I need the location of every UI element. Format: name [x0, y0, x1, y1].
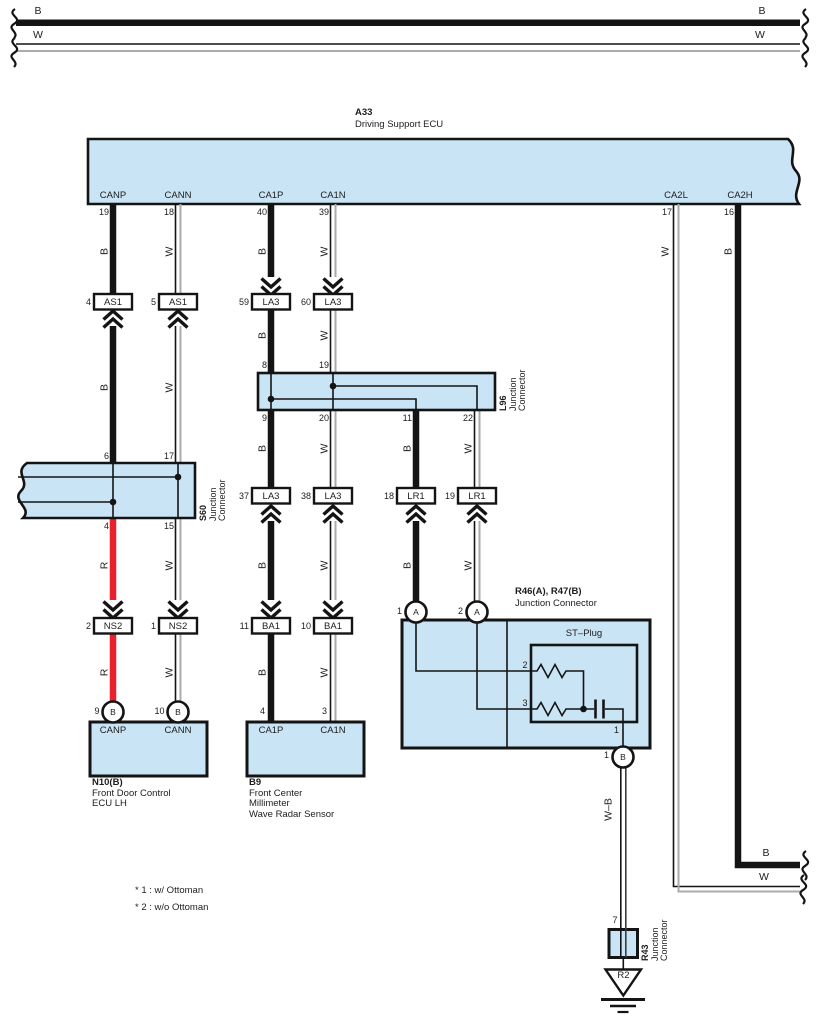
- wire-break-icon: [802, 38, 808, 67]
- r46-in-pin-num: 2: [439, 606, 463, 616]
- top-bus-wires: [11, 9, 808, 67]
- l96-junction-connector-box: [258, 373, 495, 410]
- a33-pin-num: 18: [150, 207, 174, 217]
- st-plug-pin-num: 1: [595, 725, 619, 735]
- connector-code: LA3: [314, 491, 352, 502]
- b9-desc: Millimeter: [249, 799, 290, 810]
- wire-color-label: B: [257, 657, 268, 687]
- a33-desc: Driving Support ECU: [355, 120, 443, 131]
- n10-desc: ECU LH: [92, 799, 127, 810]
- l96-pin-num: 22: [449, 413, 473, 423]
- r46-in-pin-num: 1: [378, 606, 402, 616]
- connector-pin-num: 18: [370, 491, 394, 501]
- a33-pin-num: 17: [648, 207, 672, 217]
- r46-pin-circle-letter: B: [613, 752, 634, 762]
- a33-pin-label: CA1N: [311, 191, 355, 201]
- wire-color-label: W: [754, 872, 774, 883]
- a33-pin-num: 40: [243, 207, 267, 217]
- connector-pin-num: 37: [225, 491, 249, 501]
- connector-pin-num: 5: [132, 297, 156, 307]
- diagram-graphics: [0, 0, 817, 1023]
- r46-pin-circle-letter: A: [406, 607, 427, 617]
- l96-pin-num: 8: [243, 360, 267, 370]
- wire-color-label: W: [319, 550, 330, 580]
- wire-color-label: B: [257, 320, 268, 350]
- wire-color-label: W–B: [604, 794, 615, 824]
- footnote: * 1 : w/ Ottoman: [135, 886, 203, 897]
- wire-direction-arrows: [102, 277, 488, 618]
- l96-pin-num: 9: [243, 413, 267, 423]
- a33-pin-label: CANN: [156, 191, 200, 201]
- wire-color-label: B: [257, 236, 268, 266]
- wiring-diagram: B W B W A33 Driving Support ECU CANP CAN…: [0, 0, 817, 1023]
- connector-code: AS1: [159, 297, 197, 308]
- st-plug-pin-num: 3: [504, 698, 528, 708]
- wire-color-label: B: [257, 433, 268, 463]
- connector-pin-num: 38: [287, 491, 311, 501]
- bus-w-label-right: W: [750, 30, 770, 41]
- a33-pin-num: 39: [305, 207, 329, 217]
- bus-b-label-left: B: [28, 6, 48, 17]
- wire-break-icon: [11, 9, 17, 38]
- b9-pin-num: 4: [241, 706, 265, 716]
- s60-pin-num: 4: [85, 521, 109, 531]
- ground-point-label: R2: [605, 971, 642, 982]
- connector-pin-num: 1: [132, 621, 156, 631]
- connector-code: AS1: [94, 297, 132, 308]
- wire-color-label: W: [319, 320, 330, 350]
- bus-b-label-right: B: [752, 6, 772, 17]
- wires: [113, 204, 800, 892]
- r46-desc: Junction Connector: [515, 599, 597, 610]
- b9-desc: Wave Radar Sensor: [249, 810, 334, 821]
- wire-color-label: B: [756, 848, 776, 859]
- l96-desc: Connector: [518, 369, 528, 411]
- wire-color-label: W: [164, 657, 175, 687]
- r43-junction-connector-box: [609, 930, 638, 958]
- connector-code: BA1: [314, 621, 352, 632]
- n10-code: N10(B): [92, 778, 123, 789]
- wire-color-label: R: [99, 550, 110, 580]
- s60-pin-num: 17: [150, 451, 174, 461]
- l96-pin-num: 19: [305, 360, 329, 370]
- a33-pin-label: CA1P: [249, 191, 293, 201]
- wire-color-label: W: [661, 236, 672, 266]
- wire-break-icon: [11, 38, 17, 67]
- n10-pin-num: 10: [141, 706, 165, 716]
- r46-pin-circle-letter: A: [467, 607, 488, 617]
- n10-pin-circle-letter: B: [168, 707, 189, 717]
- s60-junction-connector-box: [18, 463, 195, 518]
- st-plug-label: ST–Plug: [531, 629, 637, 640]
- a33-pin-label: CA2L: [654, 191, 698, 201]
- a33-pin-label: CA2H: [718, 191, 762, 201]
- r43-desc: Connector: [660, 919, 670, 961]
- l96-pin-num: 11: [388, 413, 412, 423]
- n10-pin-circle-letter: B: [103, 707, 124, 717]
- b9-pin-num: 3: [303, 706, 327, 716]
- wire-color-label: W: [164, 236, 175, 266]
- r46-title: R46(A), R47(B): [515, 587, 582, 598]
- connector-code: LA3: [252, 491, 290, 502]
- n10-pin-label: CANP: [91, 726, 135, 736]
- wire-break-icon: [802, 9, 808, 38]
- connector-pin-num: 10: [287, 621, 311, 631]
- connector-code: LA3: [314, 297, 352, 308]
- r46-out-pin-num: 1: [585, 750, 609, 760]
- connector-code: LA3: [252, 297, 290, 308]
- wire-color-label: B: [723, 236, 734, 266]
- wire-color-label: B: [402, 550, 413, 580]
- wire-color-label: R: [99, 657, 110, 687]
- s60-desc: Connector: [218, 479, 228, 521]
- wire-color-label: W: [319, 433, 330, 463]
- connector-code: LR1: [397, 491, 435, 502]
- a33-pin-num: 16: [710, 207, 734, 217]
- b9-code: B9: [249, 778, 261, 789]
- connector-code: BA1: [252, 621, 290, 632]
- r43-pin-num: 7: [594, 915, 618, 925]
- wire-color-label: W: [463, 550, 474, 580]
- wire-color-label: W: [164, 550, 175, 580]
- footnote: * 2 : w/o Ottoman: [135, 903, 208, 914]
- l96-pin-num: 20: [305, 413, 329, 423]
- connector-pin-num: 11: [225, 621, 249, 631]
- r43-label: R43 Junction Connector: [641, 919, 670, 961]
- s60-label: S60 Junction Connector: [199, 479, 228, 521]
- connector-pin-num: 4: [67, 297, 91, 307]
- a33-code: A33: [355, 108, 372, 119]
- wire-color-label: B: [99, 236, 110, 266]
- wire-color-label: W: [164, 372, 175, 402]
- wire-color-label: B: [402, 433, 413, 463]
- s60-pin-num: 15: [150, 521, 174, 531]
- wire-color-label: B: [99, 372, 110, 402]
- st-plug-pin-num: 2: [504, 660, 528, 670]
- n10-pin-label: CANN: [156, 726, 200, 736]
- l96-label: L96 Junction Connector: [499, 369, 528, 411]
- n10-pin-num: 9: [76, 706, 100, 716]
- connector-pin-num: 60: [287, 297, 311, 307]
- b9-pin-label: CA1P: [249, 726, 293, 736]
- wire-color-label: B: [257, 550, 268, 580]
- connector-code: NS2: [94, 621, 132, 632]
- wire-color-label: W: [463, 433, 474, 463]
- ground-icon: [601, 1000, 645, 1013]
- b9-pin-label: CA1N: [311, 726, 355, 736]
- connector-code: LR1: [458, 491, 496, 502]
- a33-pin-num: 19: [85, 207, 109, 217]
- connector-pin-num: 2: [67, 621, 91, 631]
- connector-pin-num: 59: [225, 297, 249, 307]
- connector-code: NS2: [159, 621, 197, 632]
- s60-pin-num: 6: [85, 451, 109, 461]
- bus-w-label-left: W: [28, 30, 48, 41]
- wire-color-label: W: [319, 657, 330, 687]
- wire-color-label: W: [319, 236, 330, 266]
- a33-pin-label: CANP: [91, 191, 135, 201]
